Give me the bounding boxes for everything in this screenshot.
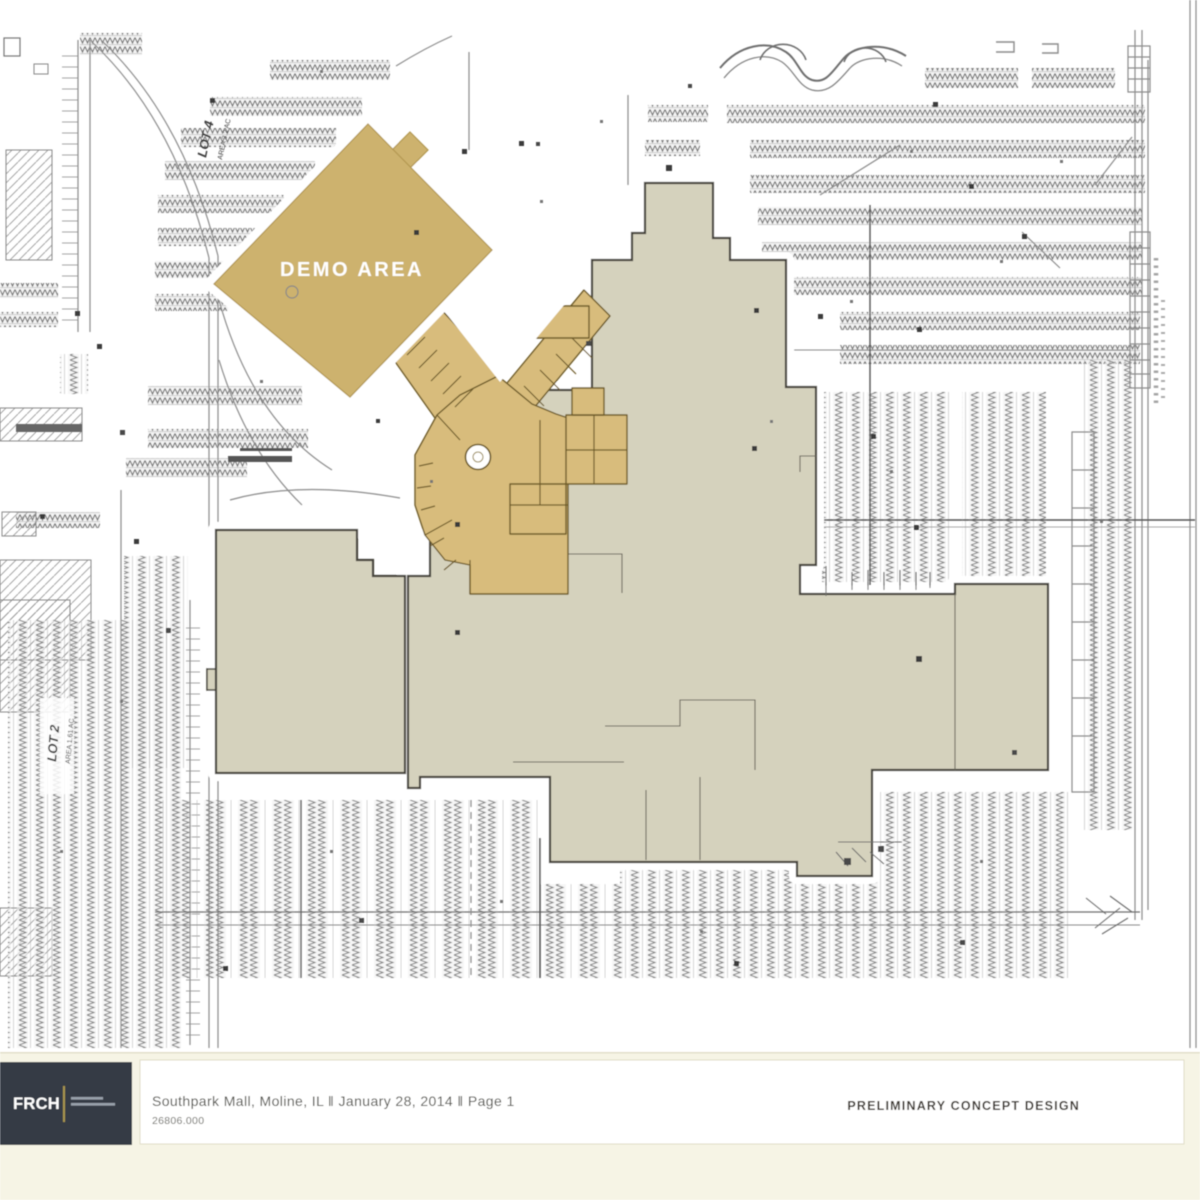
svg-text:DEMO AREA: DEMO AREA bbox=[280, 259, 424, 281]
svg-text:26806.000: 26806.000 bbox=[152, 1115, 204, 1127]
svg-text:PRELIMINARY CONCEPT DESIGN: PRELIMINARY CONCEPT DESIGN bbox=[847, 1099, 1080, 1113]
svg-text:Southpark Mall, Moline, IL ‖ J: Southpark Mall, Moline, IL ‖ January 28,… bbox=[152, 1093, 515, 1109]
svg-text:FRCH: FRCH bbox=[13, 1095, 60, 1113]
